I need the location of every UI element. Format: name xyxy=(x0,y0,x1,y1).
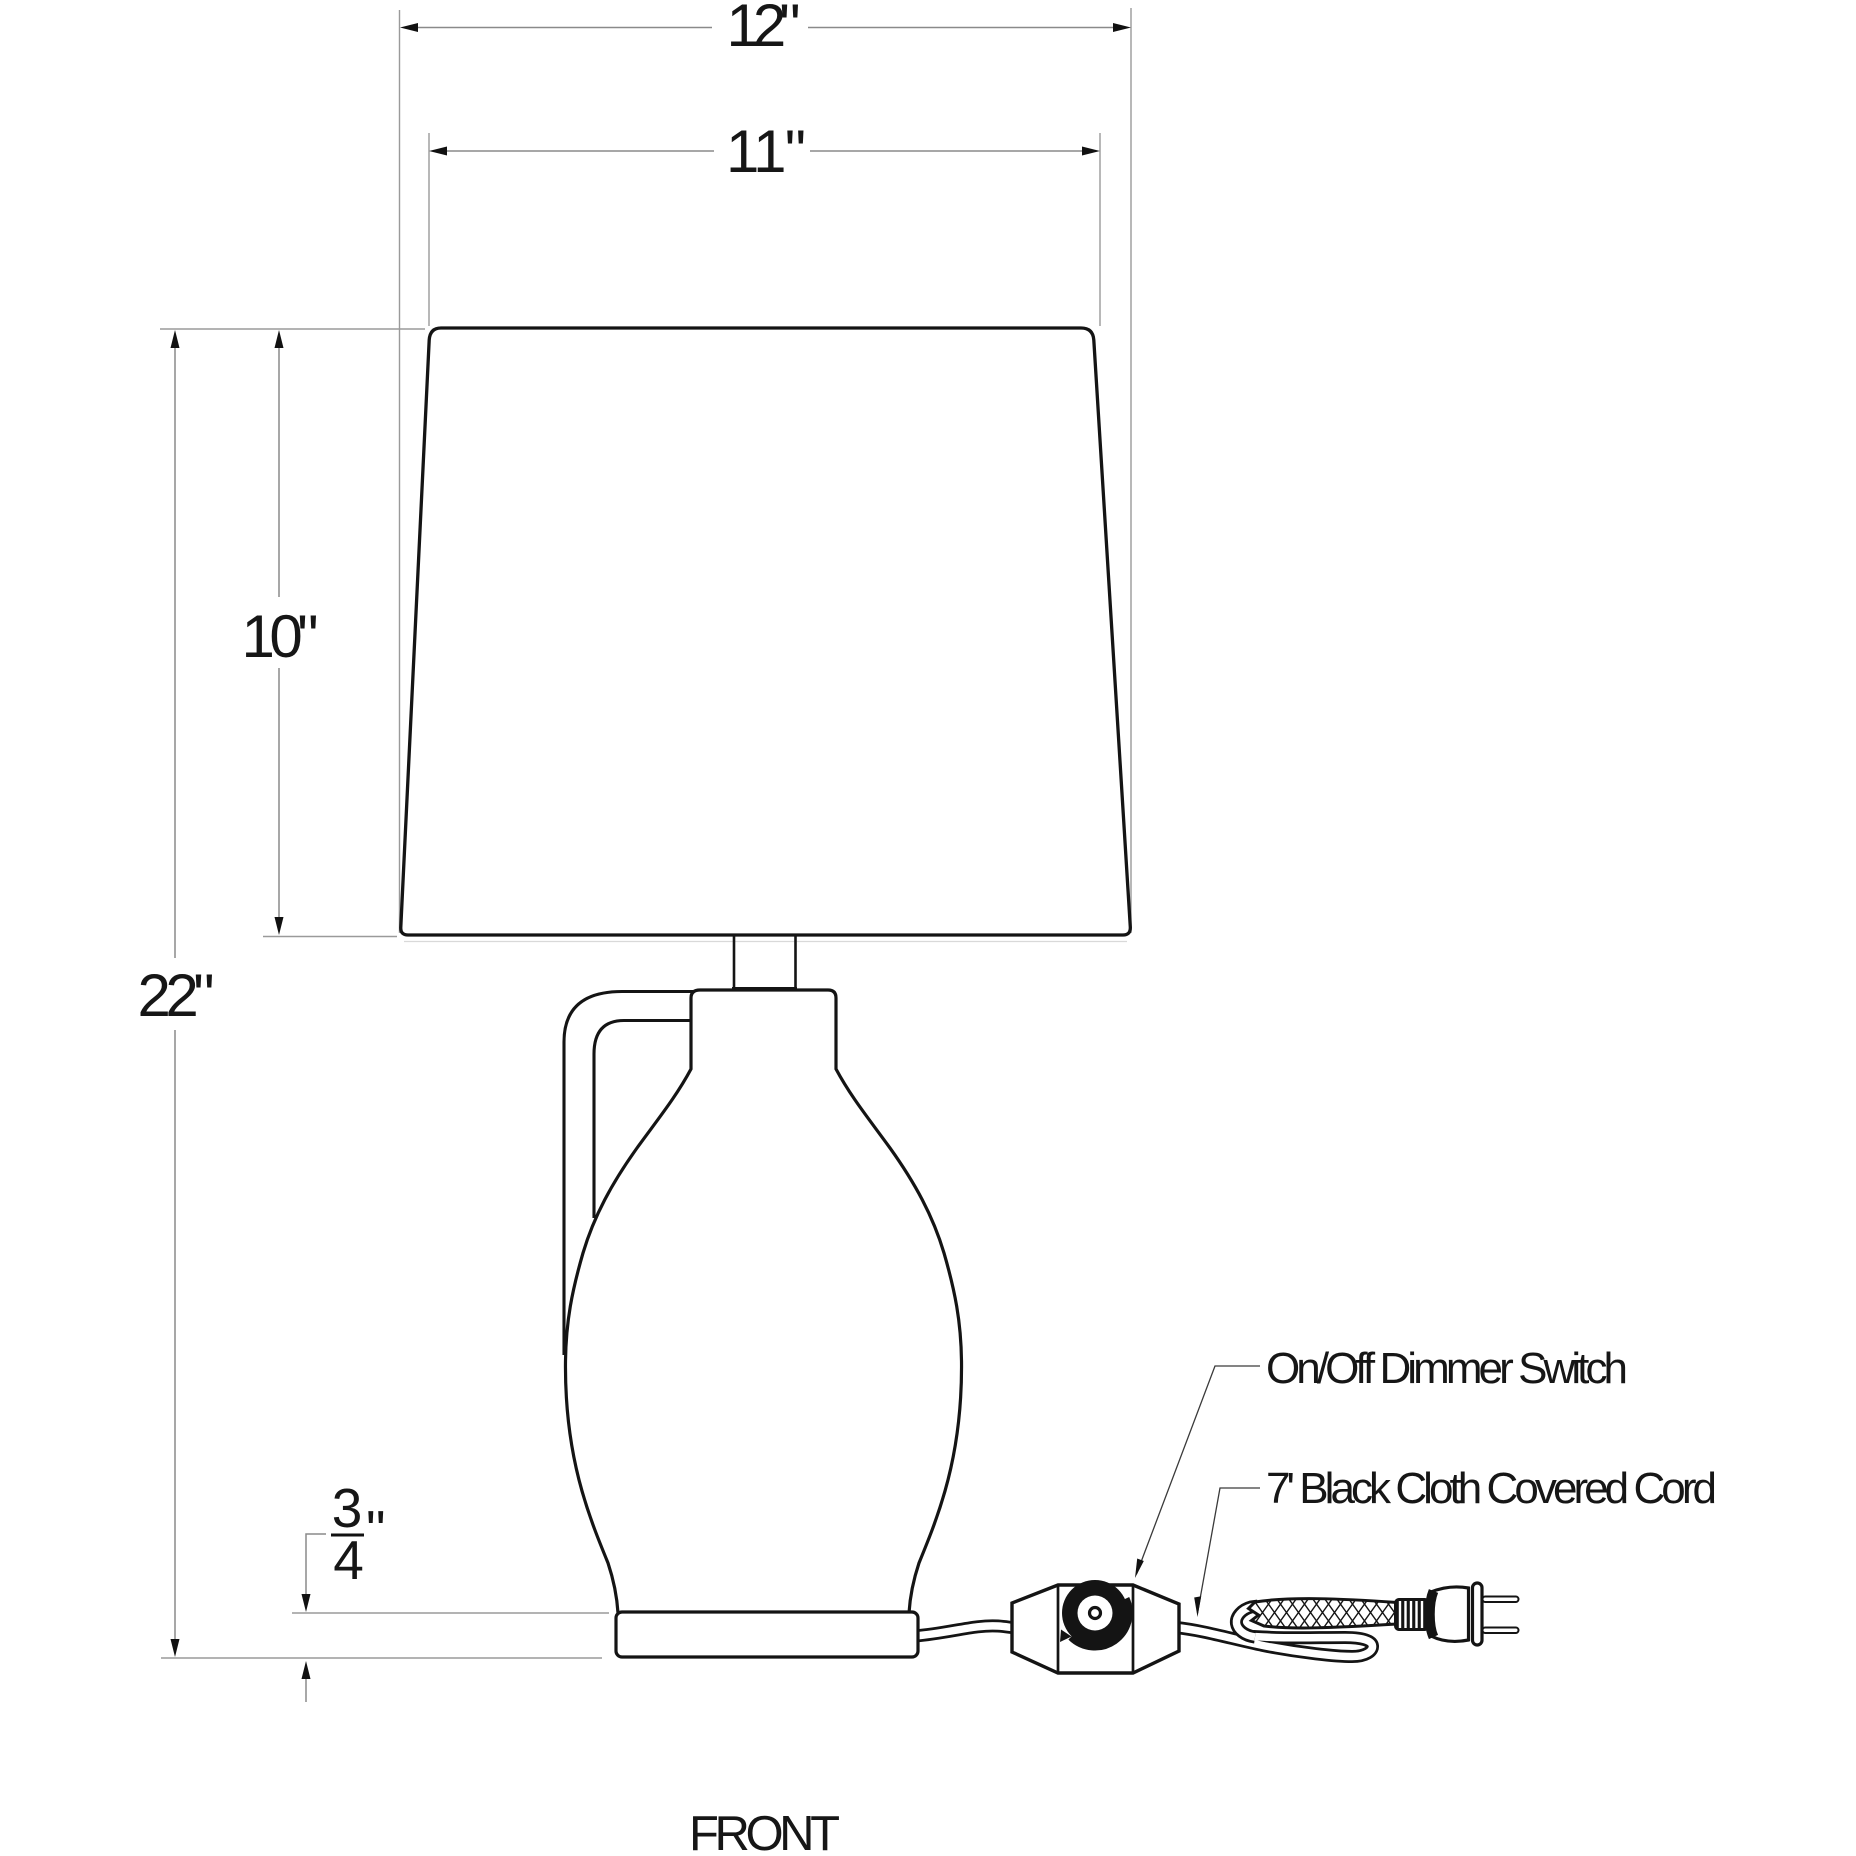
svg-text:22": 22" xyxy=(138,962,215,1029)
svg-text:10": 10" xyxy=(242,603,319,670)
svg-text:12": 12" xyxy=(727,0,801,59)
svg-text:On/Off Dimmer Switch: On/Off Dimmer Switch xyxy=(1266,1344,1628,1393)
svg-text:11": 11" xyxy=(726,118,806,185)
svg-text:": " xyxy=(366,1499,386,1561)
svg-text:7' Black Cloth Covered Cord: 7' Black Cloth Covered Cord xyxy=(1266,1464,1717,1513)
svg-text:4: 4 xyxy=(333,1529,364,1591)
svg-text:FRONT: FRONT xyxy=(689,1807,840,1856)
